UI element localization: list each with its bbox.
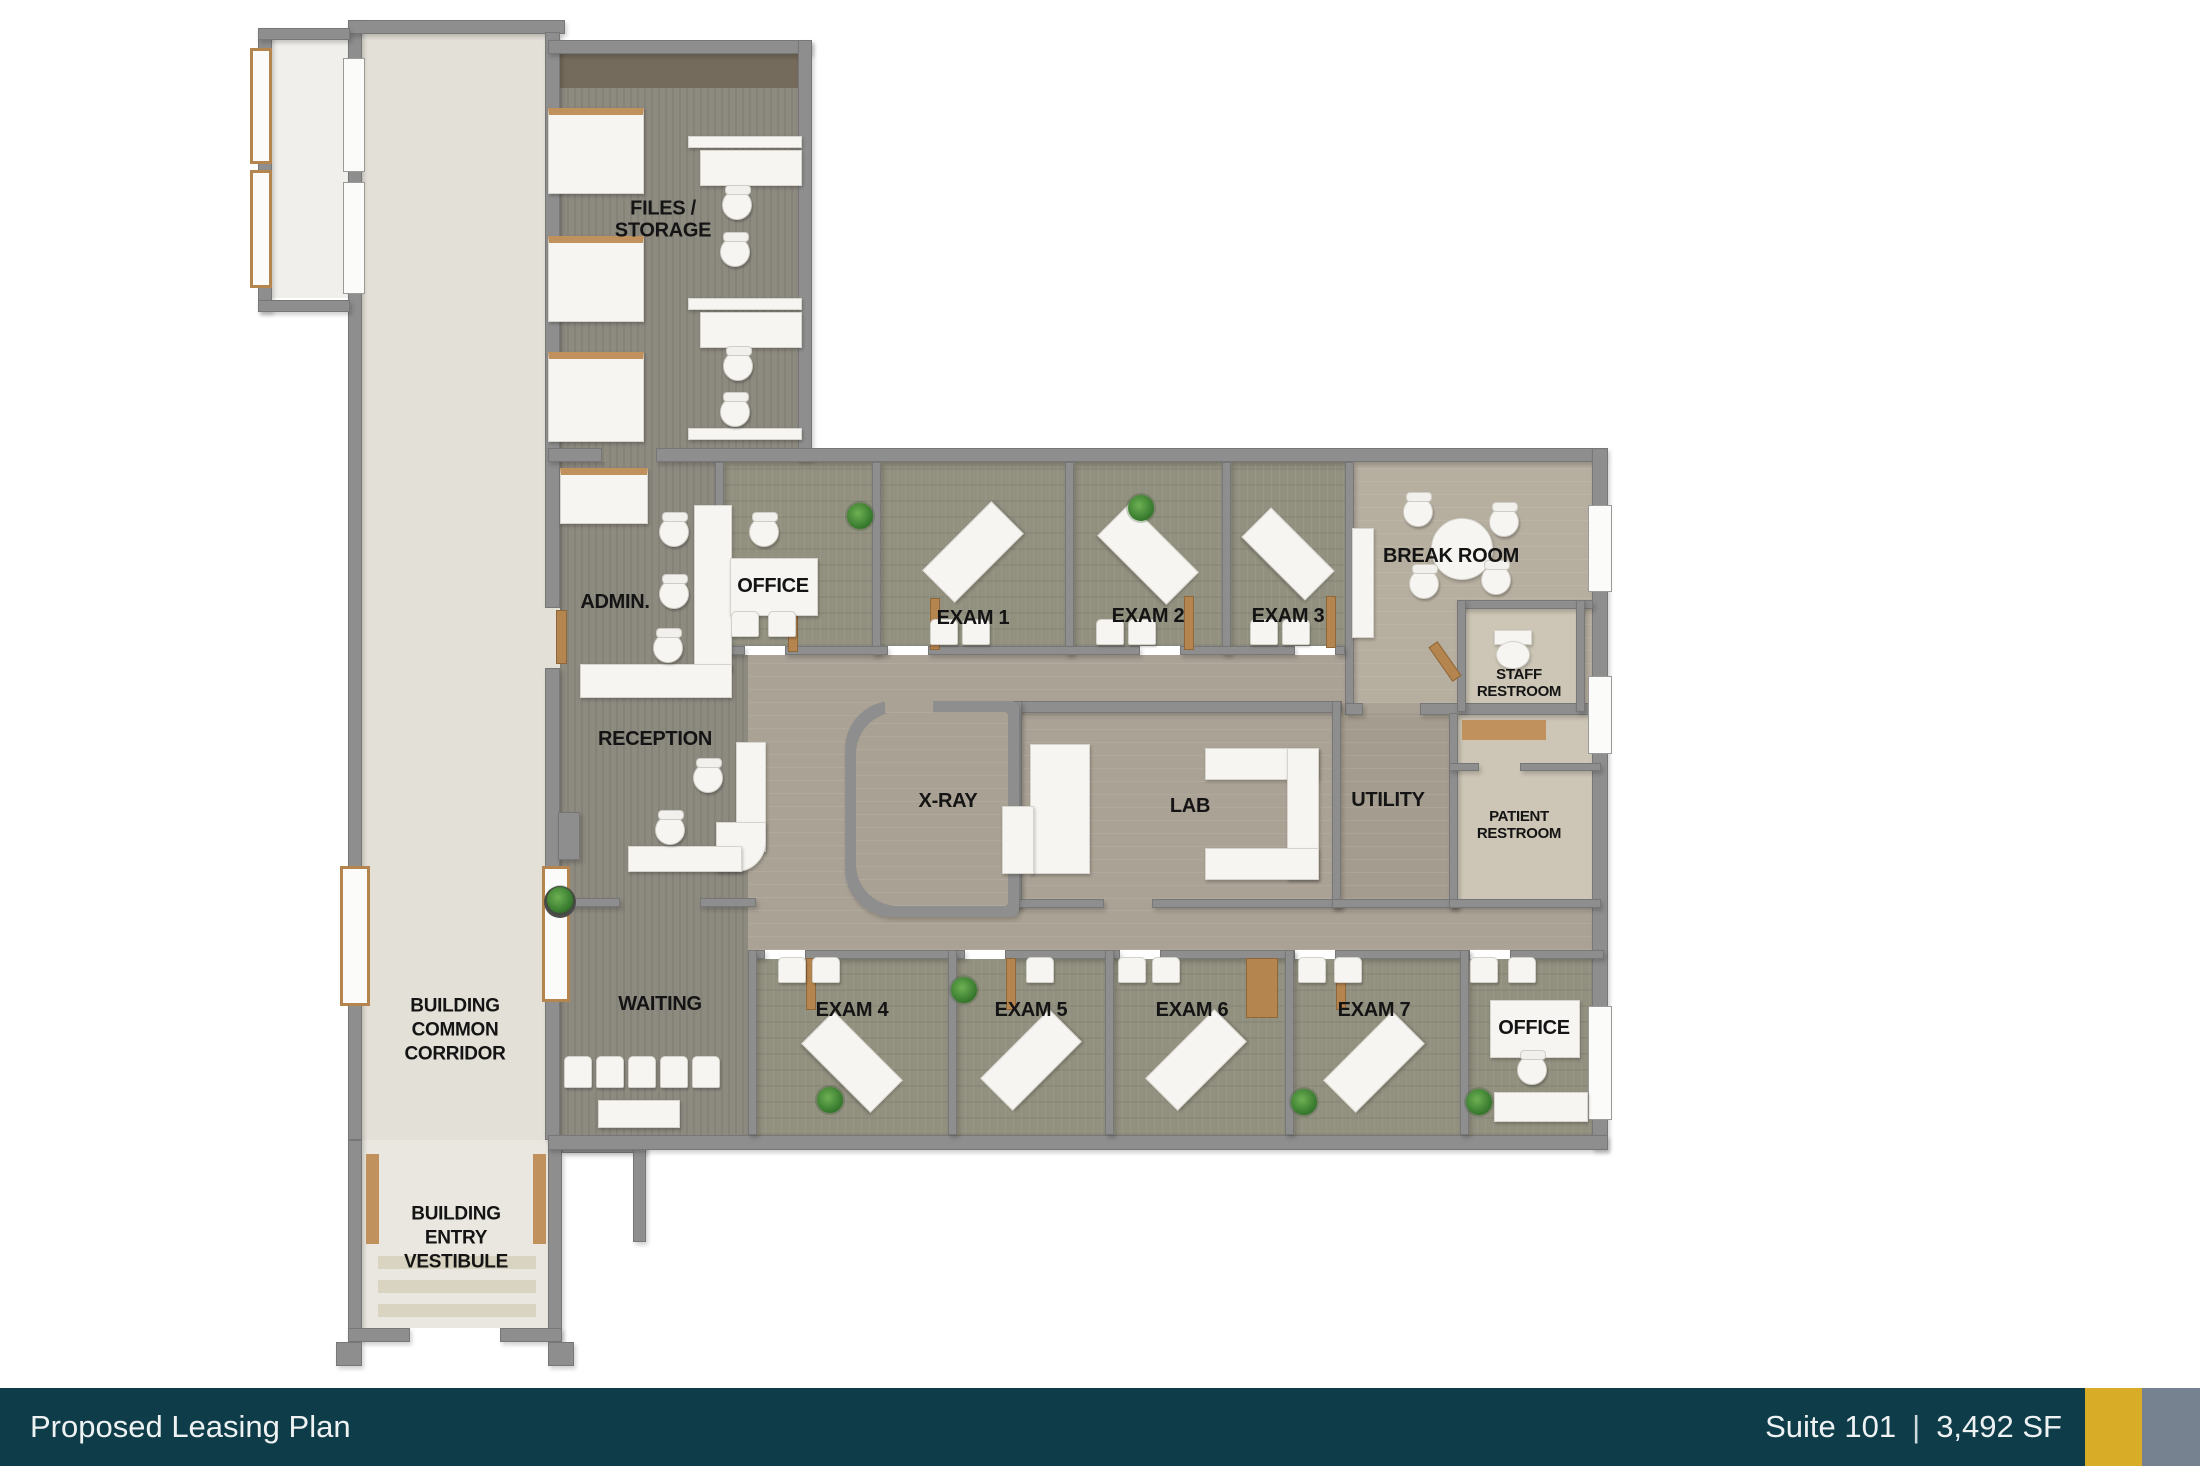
vestibule-bottom-wall-left: [348, 1328, 410, 1342]
office-bottom-label: OFFICE: [1498, 1017, 1570, 1039]
vestibule-right-wall: [548, 1140, 562, 1340]
corridor-window-top2: [343, 182, 365, 294]
exam6-chair-1-icon: [1118, 957, 1146, 983]
office-top-plant-icon: [847, 503, 873, 529]
waiting-label: WAITING: [618, 993, 701, 1015]
exam4-plant-icon: [817, 1087, 843, 1113]
exam5-chair-icon: [1026, 957, 1054, 983]
files-desk-1: [700, 150, 802, 186]
exam2-plant-icon: [1128, 495, 1154, 521]
patient-restroom-left-wall: [1449, 713, 1458, 908]
office-top-label: OFFICE: [737, 575, 809, 597]
break-chair-2-icon: [1489, 507, 1519, 537]
right-wall-window2: [1588, 676, 1612, 754]
exam5-label: EXAM 5: [995, 999, 1068, 1021]
suite-bottom-wall: [548, 1135, 1608, 1150]
files-partition-1: [688, 136, 802, 148]
exam5-plant-icon: [951, 977, 977, 1003]
entry-side-wall-v: [633, 1140, 646, 1242]
exam4-chair-1-icon: [778, 957, 806, 983]
corridor-window-lower-left: [340, 866, 370, 1006]
exam7-chair-2-icon: [1334, 957, 1362, 983]
staff-toilet-bowl-icon: [1496, 641, 1530, 669]
suite-area: 3,492 SF: [1936, 1409, 2062, 1444]
admin-label: ADMIN.: [580, 591, 649, 613]
office-top-guest-chair-1-icon: [731, 611, 759, 637]
files-cabinet-1: [548, 108, 644, 194]
xray-counter-1: [1030, 744, 1090, 874]
toprow-bottom-wall-b: [785, 646, 888, 655]
exam4-chair-2-icon: [812, 957, 840, 983]
vestibule-mat-2: [378, 1280, 536, 1293]
window-room-window2: [250, 170, 272, 288]
exam1-label: EXAM 1: [937, 607, 1010, 629]
waiting-chair-1-icon: [564, 1056, 592, 1088]
exam2-label: EXAM 2: [1112, 605, 1185, 627]
admin-chair-2-icon: [659, 579, 689, 609]
exam3-label: EXAM 3: [1252, 605, 1325, 627]
waiting-chair-2-icon: [596, 1056, 624, 1088]
waiting-chair-5-icon: [692, 1056, 720, 1088]
exam4-exam5-wall: [948, 950, 957, 1135]
exam4-label: EXAM 4: [816, 999, 889, 1021]
waiting-chair-4-icon: [660, 1056, 688, 1088]
exam5-exam6-wall: [1105, 950, 1114, 1135]
files-storage-wall-shade: [560, 54, 798, 88]
reception-label: RECEPTION: [598, 728, 712, 750]
vestibule-column-right: [548, 1342, 574, 1366]
files-chair-2-icon: [720, 237, 750, 267]
waiting-exam4-wall: [748, 950, 757, 1135]
files-cabinet-2: [548, 236, 644, 322]
files-chair-3-icon: [723, 351, 753, 381]
admin-counter-horizontal: [580, 664, 732, 698]
files-storage-label: FILES / STORAGE: [615, 198, 711, 243]
xray-counter-2: [1002, 806, 1034, 874]
admin-counter-vertical: [694, 505, 732, 671]
admin-chair-1-icon: [659, 517, 689, 547]
footer-accent-gold: [2085, 1388, 2142, 1466]
utility-label: UTILITY: [1351, 789, 1424, 811]
corridor-floor: [362, 32, 545, 1140]
window-room-floor: [272, 40, 348, 298]
files-desk-2: [700, 312, 802, 348]
vestibule-bottom-wall-right: [500, 1328, 562, 1342]
utility-bottom-wall: [1332, 899, 1458, 908]
window-room-window1: [250, 48, 272, 164]
files-right-wall: [798, 40, 812, 460]
exam2-door-icon: [1184, 596, 1194, 650]
page-title: Proposed Leasing Plan: [30, 1388, 351, 1466]
exam7-chair-1-icon: [1298, 957, 1326, 983]
office-top-chair-icon: [749, 517, 779, 547]
exam6-door-icon: [1246, 958, 1278, 1018]
exam7-plant-icon: [1291, 1089, 1317, 1115]
files-top-wall: [548, 40, 812, 54]
break-room-counter: [1352, 528, 1374, 638]
reception-chair-1-icon: [693, 763, 723, 793]
break-chair-4-icon: [1481, 565, 1511, 595]
corridor-window-top1: [343, 58, 365, 172]
corridor-top-wall: [348, 20, 565, 34]
office-bottom-chair-icon: [1517, 1055, 1547, 1085]
patient-restroom-mid-wall-a: [1449, 763, 1479, 771]
entry-vestibule-label: BUILDING ENTRY VESTIBULE: [404, 1202, 508, 1273]
admin-chair-3-icon: [653, 633, 683, 663]
office-bottom-guest-chair-1-icon: [1470, 957, 1498, 983]
suite-top-wall-left: [548, 448, 602, 462]
break-bottom-wall-left: [1345, 703, 1363, 715]
exam7-label: EXAM 7: [1338, 999, 1411, 1021]
office-bottom-plant-icon: [1466, 1089, 1492, 1115]
xray-door-gap: [885, 701, 933, 713]
staff-restroom-top-wall: [1457, 600, 1593, 609]
suite-info: Suite 101|3,492 SF: [1765, 1388, 2062, 1466]
staff-restroom-left-wall: [1457, 600, 1466, 712]
xray-label: X-RAY: [919, 790, 978, 812]
footer-bar: Proposed Leasing Plan Suite 101|3,492 SF: [0, 1388, 2200, 1466]
suite-separator: |: [1912, 1388, 1920, 1466]
office-top-guest-chair-2-icon: [768, 611, 796, 637]
corridor-door-icon: [556, 610, 567, 664]
toprow-bottom-wall-c: [928, 646, 1140, 655]
staff-restroom-right-wall: [1576, 600, 1585, 712]
suite-entry-gap: [602, 448, 656, 462]
patient-restroom-counter: [1462, 720, 1546, 740]
exam6-chair-2-icon: [1152, 957, 1180, 983]
patient-restroom-bottom-wall: [1449, 899, 1601, 908]
exam3-door-icon: [1326, 596, 1336, 648]
office-bottom-window: [1588, 1006, 1612, 1120]
toprow-bottom-wall-e: [1335, 646, 1345, 655]
suite-number: Suite 101: [1765, 1409, 1896, 1444]
patient-restroom-mid-wall-b: [1520, 763, 1601, 771]
vestibule-mat-3: [378, 1304, 536, 1317]
break-chair-1-icon: [1403, 497, 1433, 527]
break-chair-3-icon: [1409, 569, 1439, 599]
exam1-exam2-wall: [1065, 462, 1074, 655]
leasing-plan-canvas: FILES / STORAGE ADMIN. OFFICE EXAM 1 EXA…: [0, 0, 2200, 1466]
reception-chair-2-icon: [655, 815, 685, 845]
reception-counter-horizontal: [628, 846, 742, 872]
break-bottom-wall-right: [1420, 703, 1600, 715]
vestibule-left-wall: [348, 1140, 362, 1340]
exam6-label: EXAM 6: [1156, 999, 1229, 1021]
files-chair-1-icon: [722, 190, 752, 220]
office-exam1-wall: [872, 462, 881, 655]
common-corridor-label: BUILDING COMMON CORRIDOR: [404, 994, 505, 1065]
utility-left-wall: [1332, 701, 1341, 908]
right-wall-window1: [1588, 505, 1612, 592]
window-room-bottom-wall: [258, 300, 350, 312]
files-partition-3: [688, 428, 802, 440]
reception-knee-wall: [558, 812, 580, 860]
reception-plant-icon: [547, 887, 573, 913]
lab-bottom-wall-left: [1012, 899, 1104, 908]
break-room-label: BREAK ROOM: [1383, 545, 1519, 567]
suite-top-wall-right: [656, 448, 1604, 462]
patient-restroom-label: PATIENT RESTROOM: [1477, 809, 1561, 843]
botrow-top-wall-c: [1005, 950, 1120, 959]
waiting-stub-wall-right: [700, 898, 756, 907]
lab-counter-bottom: [1205, 848, 1319, 880]
vestibule-glass-panel-left: [366, 1154, 379, 1244]
exam2-exam3-wall: [1222, 462, 1231, 655]
admin-cabinet: [560, 468, 648, 524]
patient-restroom-floor: [1458, 713, 1592, 899]
footer-accent-gray: [2142, 1388, 2200, 1466]
staff-restroom-label: STAFF RESTROOM: [1477, 667, 1561, 701]
waiting-table: [598, 1100, 680, 1128]
lab-top-wall: [1012, 701, 1342, 713]
office-bottom-credenza: [1494, 1092, 1588, 1122]
lab-bottom-wall-right: [1152, 899, 1342, 908]
files-chair-4-icon: [720, 397, 750, 427]
office-bottom-guest-chair-2-icon: [1508, 957, 1536, 983]
files-partition-2: [688, 298, 802, 310]
files-cabinet-3: [548, 352, 644, 442]
toprow-bottom-wall-d: [1180, 646, 1295, 655]
window-room-top-wall: [258, 28, 350, 40]
lab-label: LAB: [1170, 795, 1210, 817]
vestibule-glass-panel-right: [533, 1154, 546, 1244]
waiting-chair-3-icon: [628, 1056, 656, 1088]
vestibule-column-left: [336, 1342, 362, 1366]
